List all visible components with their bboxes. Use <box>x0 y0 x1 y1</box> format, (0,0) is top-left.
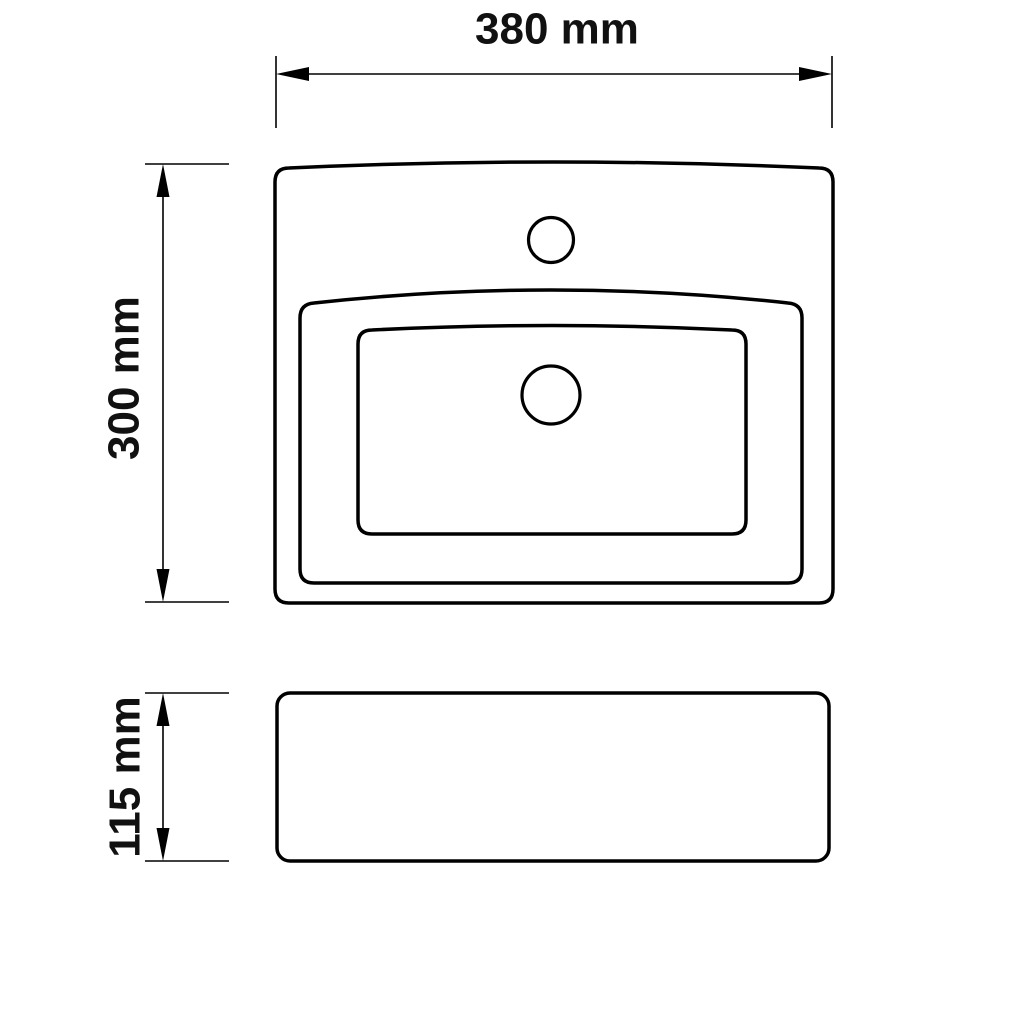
drawing-page: 380 mm 300 mm 115 mm <box>0 0 1024 1024</box>
drain-hole <box>522 366 580 424</box>
side-view <box>277 693 829 861</box>
height-dimension: 115 mm <box>101 693 230 861</box>
height-dimension-label: 115 mm <box>101 696 150 857</box>
dimension-drawing: 380 mm 300 mm 115 mm <box>0 0 1024 1024</box>
top-view <box>275 162 833 603</box>
depth-dimension-label: 300 mm <box>100 296 149 460</box>
basin-bowl-outline <box>358 326 746 535</box>
depth-dimension: 300 mm <box>100 164 230 602</box>
arrow-up-icon <box>157 693 170 726</box>
arrow-right-icon <box>799 67 832 81</box>
arrow-left-icon <box>276 67 309 81</box>
arrow-down-icon <box>157 569 170 602</box>
tap-hole <box>529 218 574 263</box>
basin-rim-outline <box>300 290 802 583</box>
arrow-up-icon <box>157 164 170 197</box>
arrow-down-icon <box>157 828 170 861</box>
width-dimension: 380 mm <box>276 5 832 129</box>
width-dimension-label: 380 mm <box>475 5 639 54</box>
side-profile-outline <box>277 693 829 861</box>
